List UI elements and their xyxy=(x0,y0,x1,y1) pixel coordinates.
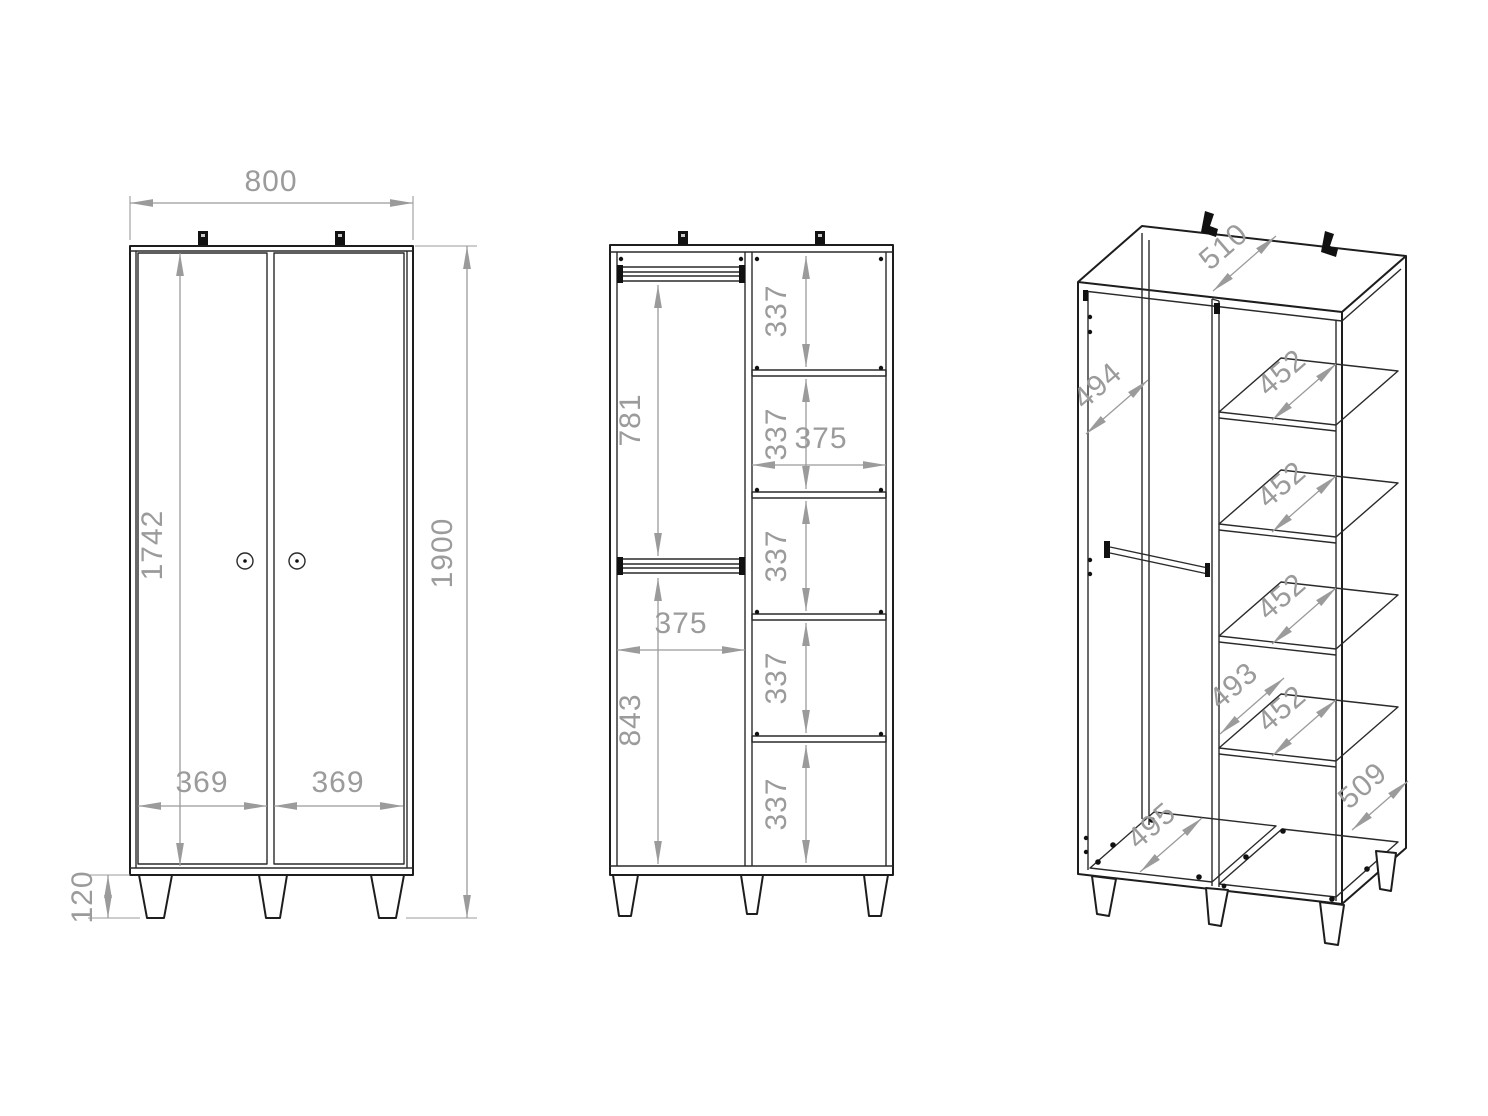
section-view-carcass xyxy=(610,245,893,875)
dim-door-panel-height: 1742 xyxy=(136,510,169,581)
front-view-legs xyxy=(139,875,404,918)
dim-lower-section-height: 843 xyxy=(614,693,647,746)
wall-bracket-icon xyxy=(198,231,345,245)
front-view-carcass xyxy=(130,246,413,875)
section-view: 781 843 375 375 337 337 337 337 337 xyxy=(610,231,893,916)
dim-upper-section-height: 781 xyxy=(614,393,647,446)
perspective-view: 510 494 452 452 452 452 493 495 509 xyxy=(1067,211,1408,945)
wardrobe-technical-drawing: 800 1742 1900 369 369 120 xyxy=(0,0,1488,1116)
section-view-dimensions: 781 843 375 375 337 337 337 337 337 xyxy=(614,256,886,864)
dim-right-door-width: 369 xyxy=(311,766,364,799)
dim-leg-height: 120 xyxy=(66,870,99,923)
dim-shelf-gap-5: 337 xyxy=(760,777,793,830)
dim-front-height: 1900 xyxy=(426,518,459,589)
dim-front-width: 800 xyxy=(244,165,297,198)
wall-bracket-icon xyxy=(678,231,825,245)
dim-shelf-gap-2: 337 xyxy=(760,407,793,460)
dim-left-door-width: 369 xyxy=(175,766,228,799)
hanging-rail-middle xyxy=(617,557,745,575)
front-view: 800 1742 1900 369 369 120 xyxy=(66,165,477,924)
dim-left-compartment-width: 375 xyxy=(654,607,707,640)
front-view-dimensions: 800 1742 1900 369 369 120 xyxy=(66,165,477,924)
dim-right-compartment-width: 375 xyxy=(794,422,847,455)
hanging-rail-top xyxy=(617,265,745,283)
dim-shelf-gap-3: 337 xyxy=(760,529,793,582)
dim-shelf-gap-4: 337 xyxy=(760,651,793,704)
section-view-legs xyxy=(613,875,888,916)
technical-drawing-page: 800 1742 1900 369 369 120 xyxy=(0,0,1488,1116)
dim-shelf-gap-1: 337 xyxy=(760,284,793,337)
